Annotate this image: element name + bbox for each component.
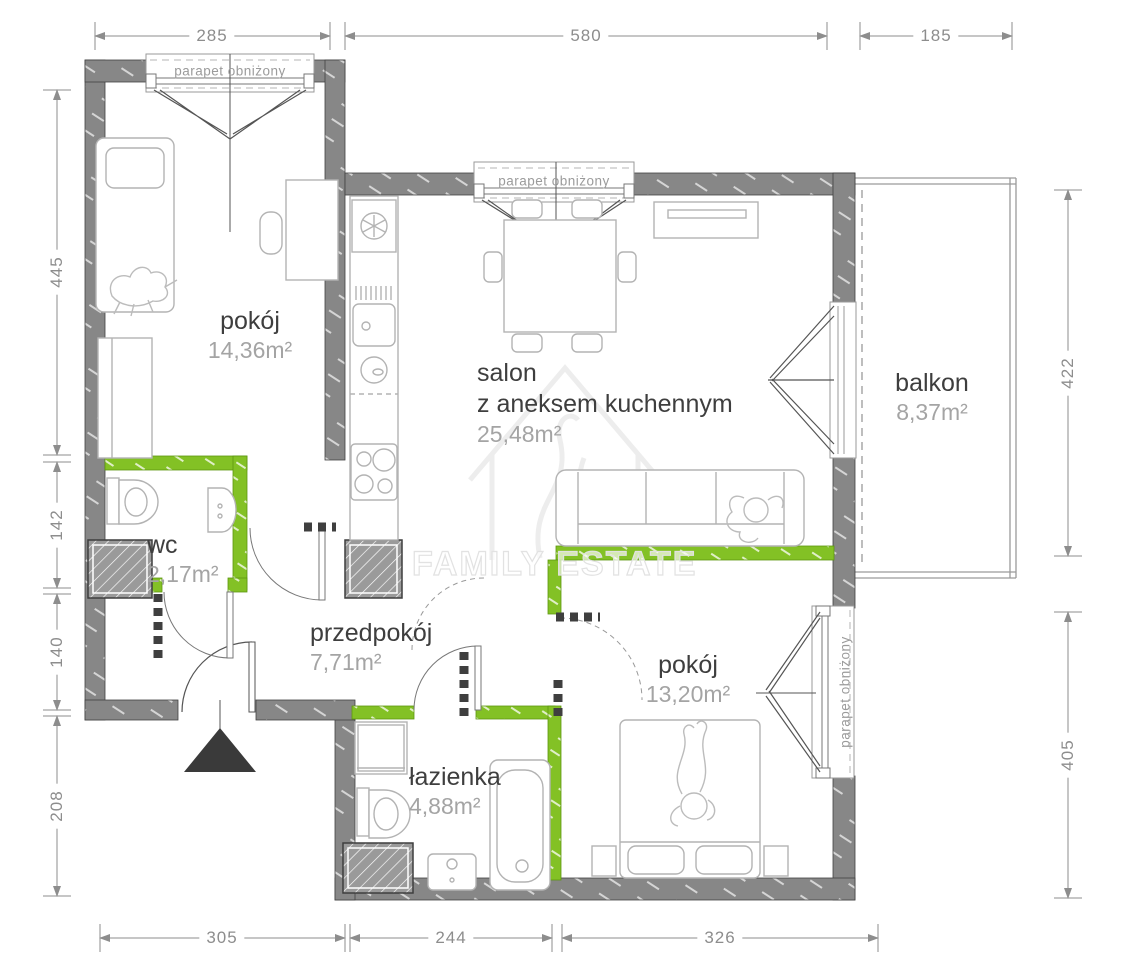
pillow: [628, 846, 684, 874]
dim-left-445: 445: [47, 249, 67, 294]
dim-bottom-305: 305: [199, 928, 244, 948]
toilet-bowl: [369, 790, 410, 838]
chair: [618, 252, 636, 282]
dim-top-185: 185: [913, 26, 958, 46]
chair: [572, 334, 602, 352]
dim-right-422: 422: [1058, 350, 1078, 395]
dim-bottom-244: 244: [428, 928, 473, 948]
pillow: [106, 148, 164, 188]
entrance-arrow: [184, 728, 256, 772]
room-label-pokoj1: pokój 14,36m²: [208, 306, 292, 365]
sofa: [556, 470, 804, 546]
room-area: 25,48m²: [477, 421, 733, 449]
room-name: pokój: [646, 650, 730, 681]
dim-top-285: 285: [189, 26, 234, 46]
dim-bottom-326: 326: [697, 928, 742, 948]
washbasin: [208, 488, 236, 532]
room-label-balkon: balkon 8,37m²: [895, 368, 969, 427]
window-sill-label: parapet obniżony: [174, 64, 286, 79]
room-label-lazienka: łazienka 4,88m²: [409, 762, 501, 821]
room-label-wc: wc 2,17m²: [147, 530, 219, 589]
tv-cabinet: [654, 202, 758, 238]
room-label-przedpokoj: przedpokój 7,71m²: [310, 618, 432, 677]
room-name-line2: z aneksem kuchennym: [477, 389, 733, 420]
pillow: [696, 846, 752, 874]
wardrobe: [98, 338, 152, 458]
oven: [353, 304, 395, 346]
dim-left-142: 142: [47, 502, 67, 547]
window-sill-label: parapet obniżony: [498, 174, 610, 189]
room-area: 13,20m²: [646, 681, 730, 709]
dim-right-405: 405: [1058, 732, 1078, 777]
balcony-door: [768, 302, 856, 458]
toilet-tank: [107, 478, 119, 524]
dim-left-140: 140: [47, 629, 67, 674]
room-area: 4,88m²: [409, 793, 501, 821]
dim-top-580: 580: [563, 26, 608, 46]
room-area: 2,17m²: [147, 561, 219, 589]
dim-left-208: 208: [47, 783, 67, 828]
tv: [668, 210, 746, 218]
room-name: łazienka: [409, 762, 501, 793]
window-sill-label: parapet obniżony: [838, 636, 853, 748]
furniture-pokoj2: [592, 720, 788, 878]
room-name: balkon: [895, 368, 969, 399]
chair: [484, 252, 502, 282]
floor-plan: 285 580 185 445 142 140 208 422 405 305 …: [0, 0, 1126, 960]
floor-plan-drawing: [0, 0, 1126, 960]
chair: [572, 200, 602, 218]
dining-table: [504, 220, 616, 332]
nightstand: [764, 846, 788, 876]
furniture-wc: [107, 478, 236, 532]
toilet-tank: [357, 788, 369, 836]
room-name: pokój: [208, 306, 292, 337]
chair: [260, 212, 282, 254]
nightstand: [592, 846, 616, 876]
room-name: wc: [147, 530, 219, 561]
chair: [512, 200, 542, 218]
room-label-pokoj2: pokój 13,20m²: [646, 650, 730, 709]
furniture-pokoj1: [96, 138, 338, 458]
room-area: 7,71m²: [310, 649, 432, 677]
furniture-kitchen: [350, 196, 398, 540]
washing-machine: [355, 722, 407, 774]
room-label-salon: salon z aneksem kuchennym 25,48m²: [477, 358, 733, 448]
room-area: 14,36m²: [208, 337, 292, 365]
room-area: 8,37m²: [895, 399, 969, 427]
room-name: przedpokój: [310, 618, 432, 649]
room-name: salon: [477, 358, 733, 389]
chair: [512, 334, 542, 352]
desk: [286, 180, 338, 280]
